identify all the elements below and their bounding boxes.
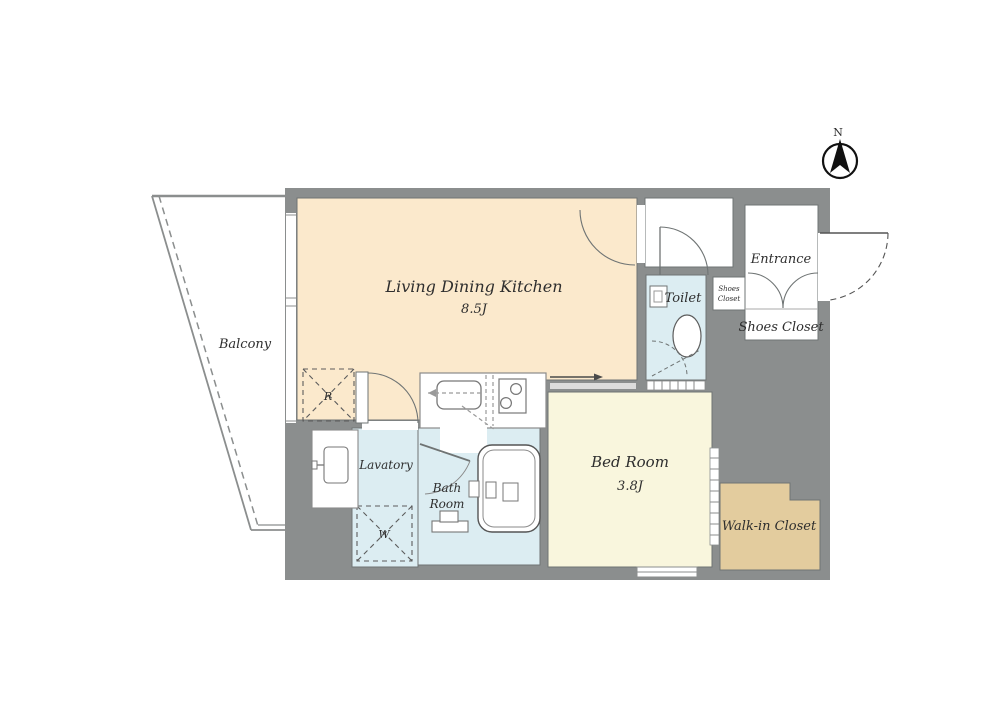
entrance-label: Entrance [750, 252, 812, 267]
ldk-window [286, 213, 296, 423]
shoes-closet-label: Shoes Closet [738, 320, 824, 335]
front-door [818, 233, 888, 301]
front-door-arc [830, 233, 888, 300]
room-lavatory [352, 428, 418, 567]
bedroom-size: 3.8J [617, 479, 644, 494]
vanity-sink [324, 447, 348, 483]
washing-machine-label: W [378, 528, 391, 541]
toilet-bowl [673, 315, 701, 357]
north-arrow [830, 139, 850, 173]
toilet-label: Toilet [665, 291, 702, 306]
bedroom-label: Bed Room [590, 453, 669, 471]
north-label: N [833, 126, 843, 139]
bathtub-faucet [486, 482, 496, 498]
walk-in-closet-label: Walk-in Closet [722, 519, 817, 534]
balcony-slant-outer [152, 196, 251, 530]
north-compass-icon: N [823, 126, 857, 178]
kitchen-counter [420, 373, 546, 430]
ldk-size: 8.5J [461, 302, 488, 317]
ldk-label: Living Dining Kitchen [384, 277, 562, 296]
room-shoes-closet-small [713, 277, 745, 310]
bath-label-line1: Bath [432, 481, 462, 495]
bath-stool [503, 483, 518, 501]
refrigerator-label: R [323, 390, 332, 403]
balcony-slant-inner [159, 196, 258, 526]
wic-sliding-door [710, 448, 719, 545]
hallway [645, 198, 733, 267]
kitchen-sink [437, 381, 481, 409]
floor-plan: Balcony R [0, 0, 1004, 702]
shoes-closet-small-line2: Closet [718, 295, 741, 303]
vanity [312, 430, 358, 508]
floor-plan-page: Balcony R [0, 0, 1004, 702]
lavatory-label: Lavatory [358, 458, 413, 472]
toilet-threshold [647, 381, 705, 390]
bedroom-window [637, 567, 697, 577]
balcony: Balcony [152, 196, 287, 530]
shoes-closet-small-line1: Shoes [718, 285, 740, 293]
bath-entry [440, 425, 487, 453]
bath-label-line2: Room [429, 497, 465, 511]
balcony-label: Balcony [218, 337, 272, 352]
